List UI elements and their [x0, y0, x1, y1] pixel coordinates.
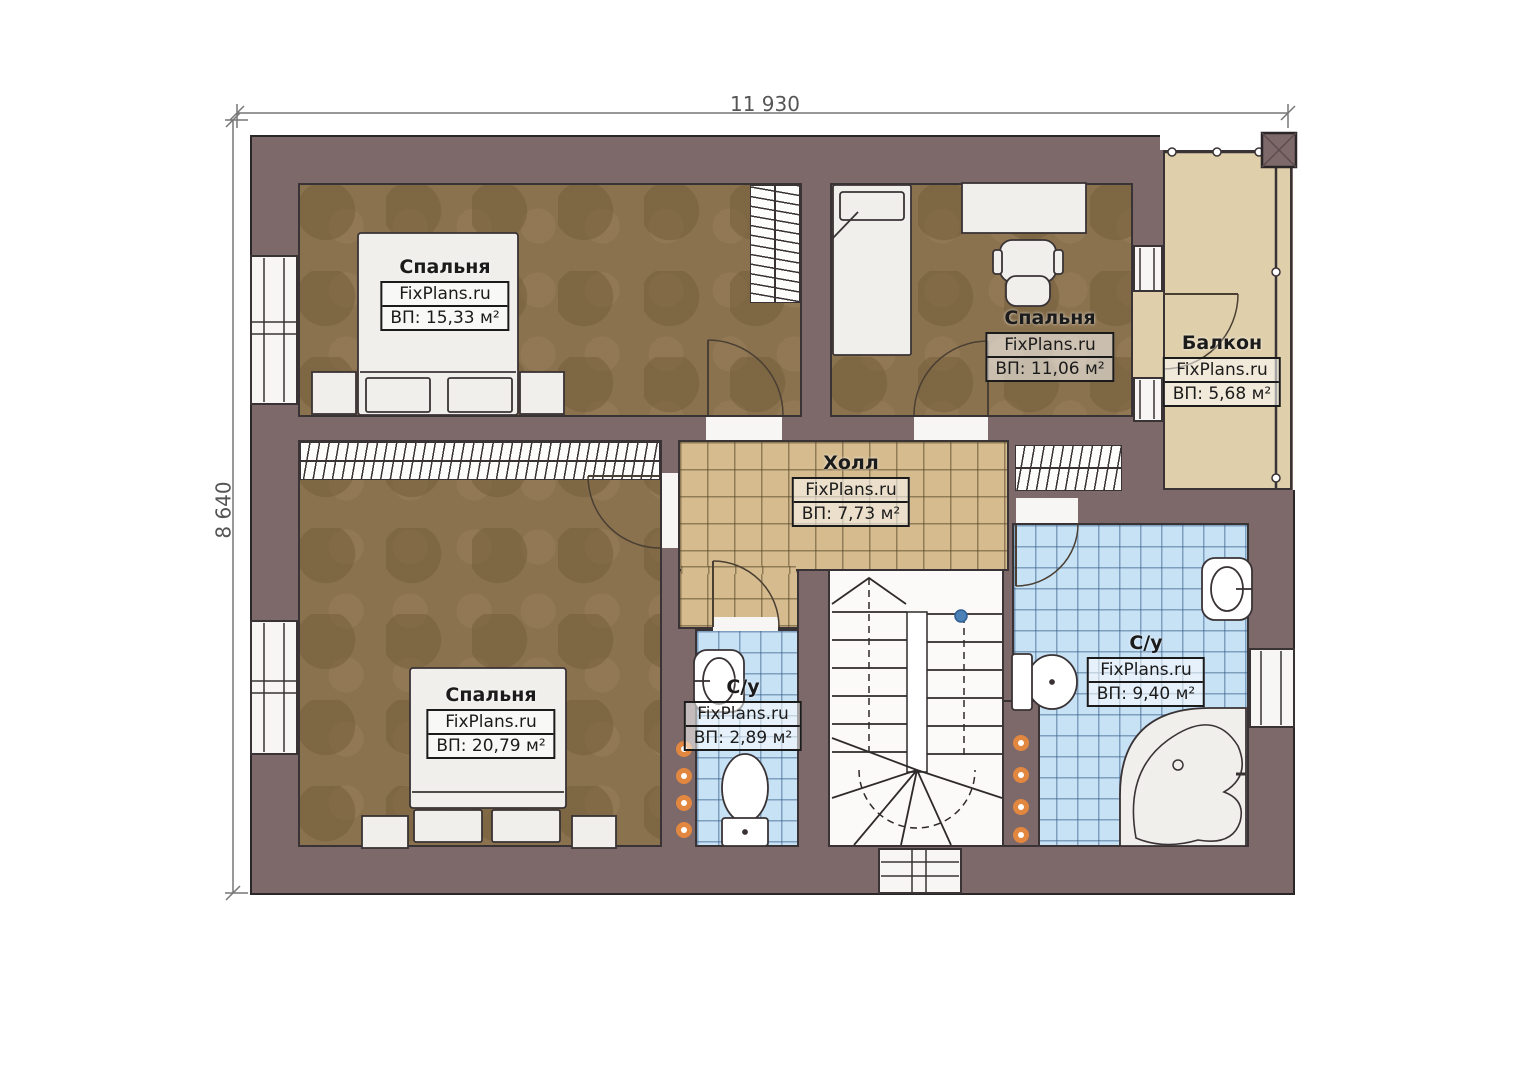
- room-title: Спальня: [426, 684, 555, 706]
- door-opening-bathroom-large: [1016, 498, 1078, 523]
- wardrobe-bedroom-3: [300, 442, 660, 480]
- room-area: ВП: 9,40 м²: [1089, 681, 1203, 705]
- window-bottom-stairs: [878, 848, 962, 894]
- hall-floor-seam: [681, 566, 796, 574]
- window-left-bedroom-3: [250, 620, 298, 755]
- wardrobe-hall-niche: [1015, 445, 1122, 491]
- watermark: FixPlans.ru: [686, 703, 800, 725]
- room-bedroom-3-floor: [298, 440, 662, 847]
- area-box: FixPlans.ru ВП: 15,33 м²: [380, 281, 509, 331]
- window-right-bathroom: [1249, 648, 1295, 728]
- label-hall: Холл FixPlans.ru ВП: 7,73 м²: [792, 452, 910, 527]
- room-area: ВП: 11,06 м²: [987, 356, 1112, 380]
- area-box: FixPlans.ru ВП: 5,68 м²: [1163, 357, 1281, 407]
- watermark: FixPlans.ru: [1165, 359, 1279, 381]
- door-opening-bathroom-small: [713, 617, 778, 631]
- room-title: Балкон: [1163, 332, 1281, 354]
- room-bedroom-1-floor: [298, 183, 802, 417]
- wardrobe-bedroom-1: [750, 185, 800, 303]
- watermark: FixPlans.ru: [428, 711, 553, 733]
- room-area: ВП: 5,68 м²: [1165, 381, 1279, 405]
- room-title: С/у: [1087, 632, 1205, 654]
- dimension-left: 8 640: [212, 481, 236, 538]
- staircase-area: [828, 569, 1004, 847]
- area-box: FixPlans.ru ВП: 9,40 м²: [1087, 657, 1205, 707]
- room-balcony-floor: [1163, 150, 1292, 490]
- label-bathroom-small: С/у FixPlans.ru ВП: 2,89 м²: [684, 676, 802, 751]
- label-balcony: Балкон FixPlans.ru ВП: 5,68 м²: [1163, 332, 1281, 407]
- door-opening-bedroom-1: [706, 417, 782, 440]
- label-bedroom-3: Спальня FixPlans.ru ВП: 20,79 м²: [426, 684, 555, 759]
- area-box: FixPlans.ru ВП: 7,73 м²: [792, 477, 910, 527]
- label-bedroom-1: Спальня FixPlans.ru ВП: 15,33 м²: [380, 256, 509, 331]
- room-area: ВП: 15,33 м²: [382, 305, 507, 329]
- balcony-outside-cover-right: [1293, 150, 1301, 490]
- balcony-outside-cover-top: [1160, 130, 1302, 150]
- door-opening-bedroom-3: [662, 473, 678, 548]
- bathroom-wall-notch: [1002, 700, 1040, 847]
- room-title: С/у: [684, 676, 802, 698]
- area-box: FixPlans.ru ВП: 20,79 м²: [426, 709, 555, 759]
- watermark: FixPlans.ru: [794, 479, 908, 501]
- room-area: ВП: 7,73 м²: [794, 501, 908, 525]
- dimension-top: 11 930: [730, 92, 800, 116]
- watermark: FixPlans.ru: [382, 283, 507, 305]
- door-opening-bedroom-2: [914, 417, 988, 440]
- window-balcony-upper: [1133, 245, 1163, 292]
- label-bathroom-large: С/у FixPlans.ru ВП: 9,40 м²: [1087, 632, 1205, 707]
- room-area: ВП: 20,79 м²: [428, 733, 553, 757]
- room-area: ВП: 2,89 м²: [686, 725, 800, 749]
- room-title: Спальня: [985, 307, 1114, 329]
- window-balcony-lower: [1133, 377, 1163, 422]
- watermark: FixPlans.ru: [987, 334, 1112, 356]
- area-box: FixPlans.ru ВП: 2,89 м²: [684, 701, 802, 751]
- area-box: FixPlans.ru ВП: 11,06 м²: [985, 332, 1114, 382]
- room-title: Спальня: [380, 256, 509, 278]
- label-bedroom-2: Спальня FixPlans.ru ВП: 11,06 м²: [985, 307, 1114, 382]
- floor-plan: 11 930 8 640 Спальня FixPlans.ru ВП: 15,…: [0, 0, 1528, 1080]
- window-left-bedroom-1: [250, 255, 298, 405]
- door-opening-balcony: [1133, 292, 1163, 377]
- watermark: FixPlans.ru: [1089, 659, 1203, 681]
- room-title: Холл: [792, 452, 910, 474]
